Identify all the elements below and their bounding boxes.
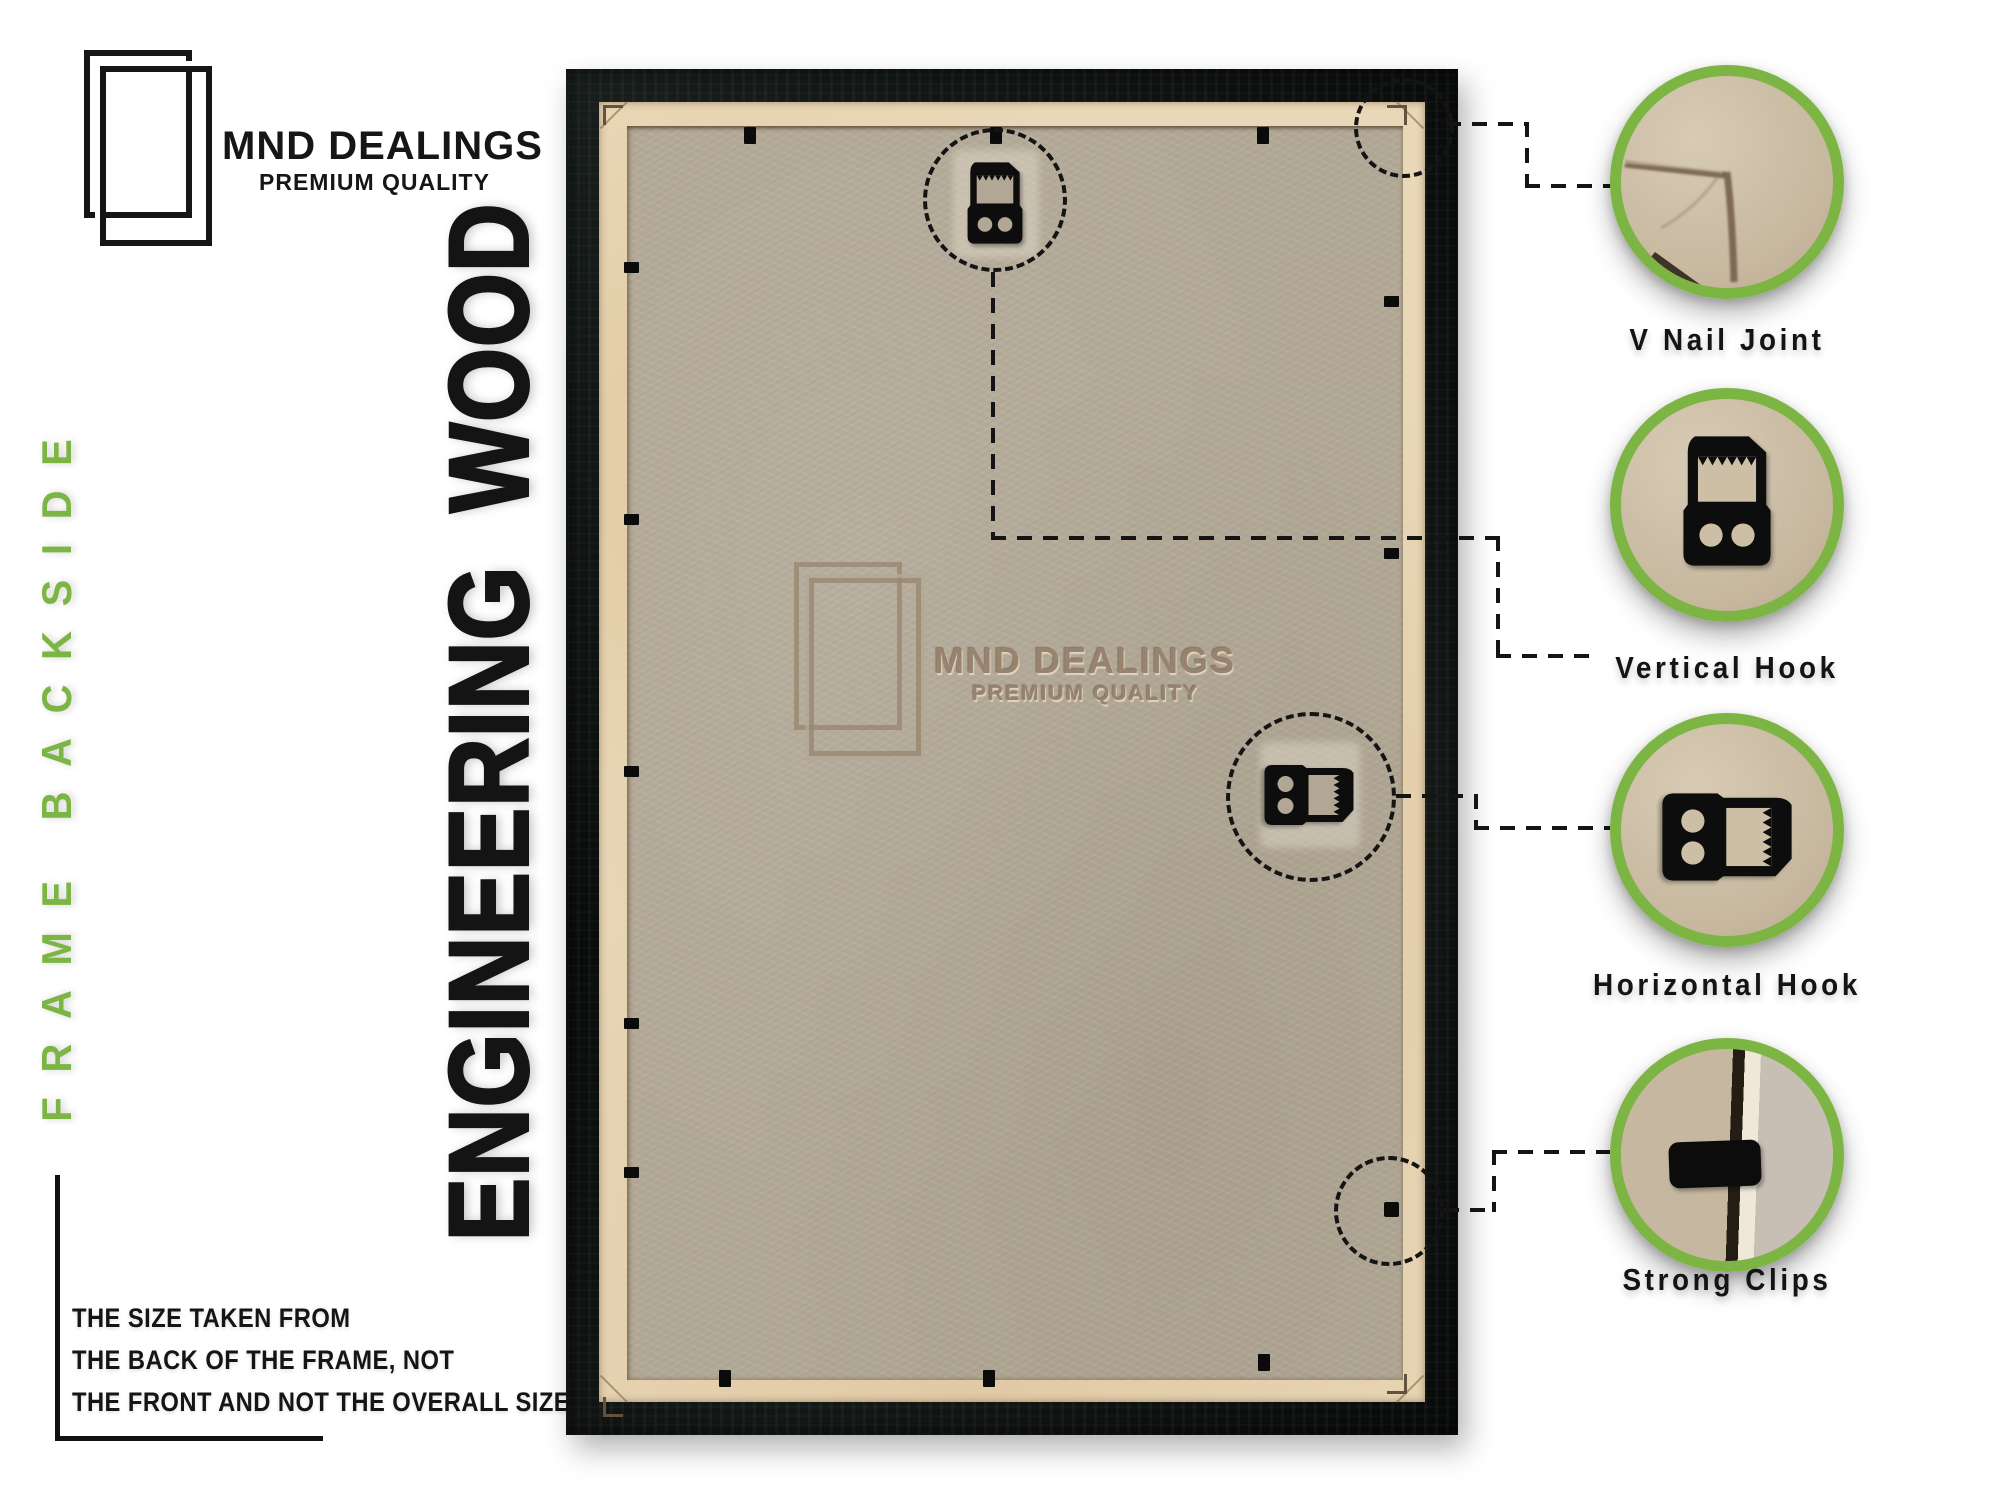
staple-mark [719, 1370, 731, 1387]
staple-mark [624, 1167, 639, 1178]
callout-connector [1446, 122, 1528, 126]
callout-connector [1496, 536, 1500, 658]
callout-connector [1396, 794, 1478, 798]
callout-connector [1444, 1208, 1496, 1212]
callout-connector [991, 272, 995, 538]
callout-photo-strong-clips [1610, 1038, 1844, 1272]
staple-mark [624, 1018, 639, 1029]
callout-photo-horizontal-hook [1610, 713, 1844, 947]
callout-photo-v-nail-joint [1610, 65, 1844, 299]
size-note-line: THE SIZE TAKEN FROM [72, 1297, 577, 1339]
callout-label-strong-clips: Strong Clips [1547, 1262, 1907, 1298]
size-note-line: THE BACK OF THE FRAME, NOT [72, 1339, 577, 1381]
note-rule-vertical [55, 1175, 60, 1441]
staple-mark [624, 766, 639, 777]
staple-mark [624, 514, 639, 525]
frame-backside-infographic: MND DEALINGS PREMIUM QUALITY FRAME BACKS… [0, 0, 2000, 1500]
staple-mark [983, 1370, 995, 1387]
staple-mark [1257, 127, 1269, 144]
side-label-frame-backside: FRAME BACKSIDE [33, 414, 81, 1121]
brand-name: MND DEALINGS [222, 124, 543, 169]
corner-mark [603, 105, 623, 125]
brand-tagline: PREMIUM QUALITY [259, 169, 490, 196]
size-note-line: THE FRONT AND NOT THE OVERALL SIZE. [72, 1381, 577, 1423]
callout-connector [1474, 794, 1478, 830]
horizontal-hook-icon [1658, 786, 1796, 888]
callout-label-vertical-hook: Vertical Hook [1547, 650, 1907, 686]
staple-mark [1258, 1354, 1270, 1371]
callout-label-horizontal-hook: Horizontal Hook [1547, 967, 1907, 1003]
staple-mark [624, 262, 639, 273]
staple-mark [1384, 296, 1399, 307]
callout-connector [1525, 184, 1613, 188]
corner-mark [1387, 1374, 1407, 1394]
callout-connector [1492, 1150, 1610, 1154]
v-nail-joint-icon [1621, 76, 1833, 288]
highlight-circle-clip [1334, 1156, 1444, 1266]
staple-mark [744, 127, 756, 144]
callout-photo-vertical-hook [1610, 388, 1844, 622]
size-note: THE SIZE TAKEN FROM THE BACK OF THE FRAM… [72, 1297, 646, 1423]
brand-logo-frame-icon [100, 66, 212, 246]
callout-label-v-nail-joint: V Nail Joint [1547, 322, 1907, 358]
watermark-logo-icon [809, 578, 921, 756]
highlight-circle-corner-joint [1354, 78, 1454, 178]
strong-clip-icon [1668, 1139, 1762, 1188]
highlight-circle-vertical-hook [923, 128, 1067, 272]
callout-connector [1474, 826, 1610, 830]
corner-mark [603, 1397, 623, 1417]
staple-mark [1384, 548, 1399, 559]
callout-connector [1492, 1150, 1496, 1212]
callout-connector [991, 536, 1500, 540]
watermark-brand-name: MND DEALINGS [934, 640, 1236, 682]
material-title: ENGINEERING WOOD [425, 203, 554, 1242]
board-watermark: MND DEALINGS PREMIUM QUALITY [790, 560, 1250, 800]
vertical-hook-icon [1676, 432, 1778, 570]
callout-connector [1525, 122, 1529, 188]
highlight-circle-horizontal-hook [1226, 712, 1396, 882]
note-rule-horizontal [55, 1436, 323, 1441]
watermark-tagline: PREMIUM QUALITY [972, 682, 1199, 706]
